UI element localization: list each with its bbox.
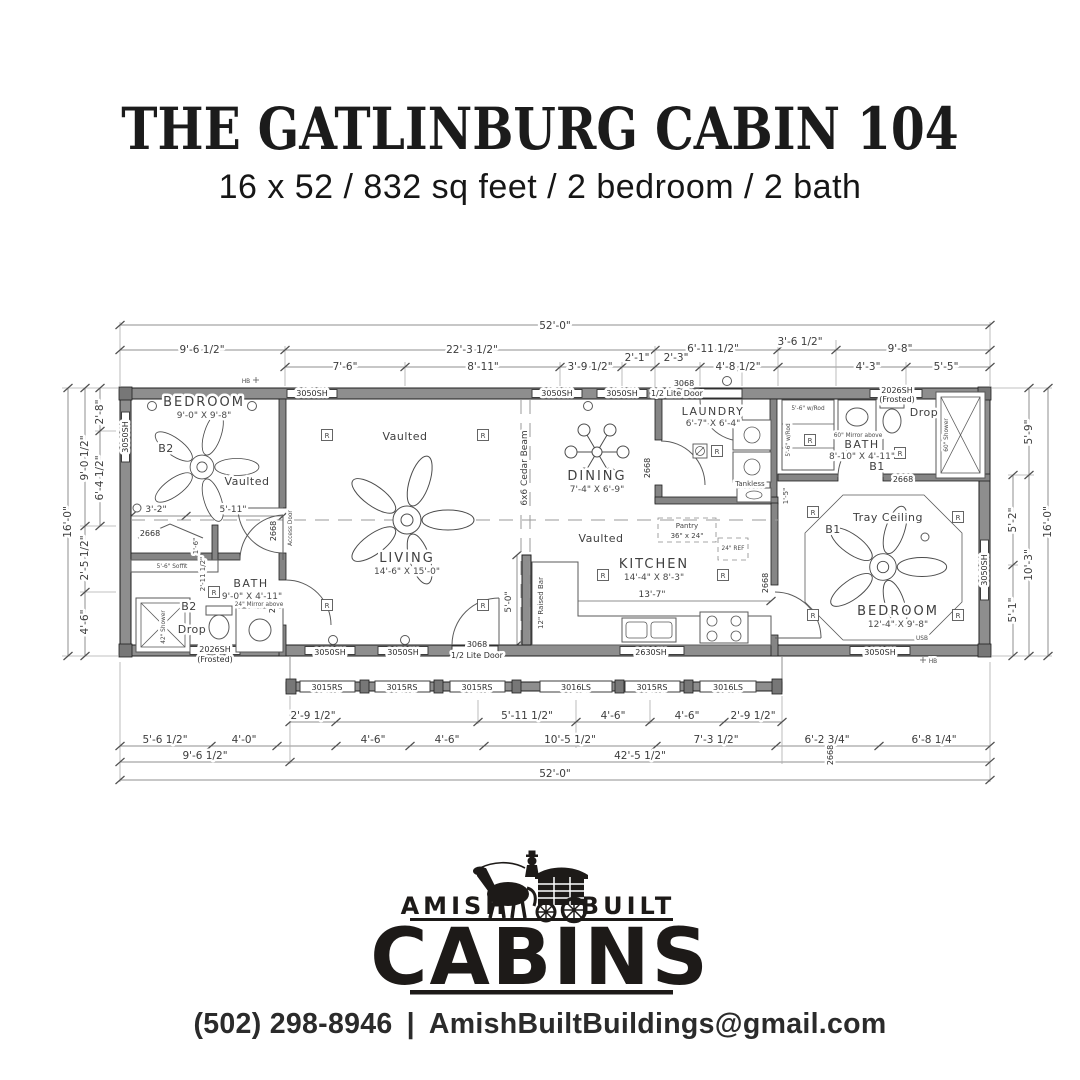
window-label: 2630SH [635, 648, 666, 657]
door-label: 1/2 Lite Door [451, 651, 504, 660]
dim-bottom: 10'-5 1/2" [544, 734, 596, 746]
recessed-icon: R [808, 437, 813, 445]
porch-window-label: 3015RS [312, 683, 343, 692]
room-bath2-tag: B2 [181, 600, 197, 613]
room-living-name: LIVING [379, 551, 435, 566]
contact-separator: | [407, 1008, 415, 1040]
room-bath1-mirror: 60" Mirror above [834, 433, 883, 439]
porch-window-label: 3015RS [637, 683, 668, 692]
dim-bottom: 4'-6" [435, 734, 460, 746]
recessed-icon: R [325, 602, 330, 610]
room-living-ceiling: Vaulted [382, 430, 427, 443]
amish-built-cabins-logo: AMISH BUILT CABINS [0, 850, 1080, 1010]
dim-top: 4'-3" [856, 361, 881, 373]
dim-right: 5'-2" [1007, 508, 1019, 533]
porch-window-label: 3015RS [462, 683, 493, 692]
dim-top: 7'-6" [333, 361, 358, 373]
window-label: 2026SH [881, 386, 912, 395]
dim-left: 4'-6" [79, 610, 91, 635]
logo-cabins: CABINS [370, 913, 710, 1003]
recessed-icon: R [481, 432, 486, 440]
dim-top: 5'-5" [934, 361, 959, 373]
dim-bottom: 42'-5 1/2" [614, 750, 666, 762]
page-subtitle: 16 x 52 / 832 sq feet / 2 bedroom / 2 ba… [0, 168, 1080, 207]
dim-left: 2'-5 1/2" [79, 535, 91, 580]
dim-bottom: 4'-6" [675, 710, 700, 722]
dim-inner: 5'-0" [504, 591, 514, 612]
dim-bottom: 4'-6" [601, 710, 626, 722]
room-bedroom1-name: BEDROOM [857, 604, 939, 619]
window-label: 3050SH [314, 648, 345, 657]
dim-right: 10'-3" [1023, 549, 1035, 581]
dim-right: 16'-0" [1042, 506, 1054, 538]
dim-inner: 1'-6" [192, 538, 200, 555]
porch-rail [286, 656, 782, 694]
phone-number: (502) 298-8946 [193, 1008, 392, 1040]
floor-plan: R R R R R R R R R R R R R R 52'-0" 9'-6 … [0, 300, 1080, 800]
dim-bottom: 6'-2 3/4" [804, 734, 849, 746]
door-label: 2668 [643, 458, 652, 478]
porch-window-label: 3015RS [387, 683, 418, 692]
dim-inner: 1'-5" [782, 488, 790, 505]
room-kitchen-size: 14'-4" X 8'-3" [624, 573, 684, 583]
door-label: 3068 [674, 379, 694, 388]
room-laundry-size: 6'-7" X 6'-4" [686, 419, 741, 429]
recessed-icon: R [715, 448, 720, 456]
window-label: 3050SH [296, 389, 327, 398]
window-label: 3050SH [541, 389, 572, 398]
dim-top: 4'-8 1/2" [715, 361, 760, 373]
recessed-icon: R [481, 602, 486, 610]
room-bath2-size: 9'-0" X 4'-11" [222, 592, 282, 602]
door-label: 2668 [269, 521, 278, 541]
door-label: 1/2 Lite Door [651, 389, 704, 398]
dim-bottom: 9'-6 1/2" [182, 750, 227, 762]
dim-top: 22'-3 1/2" [446, 344, 498, 356]
page-header: THE GATLINBURG CABIN 104 16 x 52 / 832 s… [0, 98, 1080, 207]
room-bath1-size: 8'-10" X 4'-11" [829, 452, 895, 462]
dim-bottom: 4'-0" [232, 734, 257, 746]
dim-bottom: 2'-9 1/2" [730, 710, 775, 722]
recessed-icon: R [956, 612, 961, 620]
contact-line: (502) 298-8946|AmishBuiltBuildings@gmail… [0, 1008, 1080, 1041]
window-label: 3050SH [121, 421, 130, 452]
room-laundry-name: LAUNDRY [682, 405, 745, 418]
door-label: 3068 [467, 640, 487, 649]
window-label: (Frosted) [879, 395, 915, 404]
room-bath2-soffit: 5'-6" Soffit [157, 564, 188, 570]
room-bath2-mirror: 24" Mirror above [235, 602, 284, 608]
room-bath2-drop: Drop [178, 623, 206, 636]
recessed-icon: R [325, 432, 330, 440]
dim-top: 2'-1" [625, 352, 650, 364]
dim-bottom: 5'-11 1/2" [501, 710, 553, 722]
recessed-icon: R [811, 612, 816, 620]
room-bath2-shower: 42" Shower [161, 610, 167, 644]
window-label: 3050SH [980, 554, 989, 585]
room-bedroom1-size: 12'-4" X 9'-8" [868, 620, 928, 630]
room-bedroom1-ceiling: Tray Ceiling [852, 511, 923, 524]
usb-label: USB [916, 636, 928, 642]
dim-inner: 3'-2" [145, 505, 166, 515]
dim-inner: 5'-11" [219, 505, 246, 515]
room-bath1-closet: 5'-6" w/Rod [791, 406, 825, 412]
pantry-label: Pantry [676, 522, 698, 530]
dim-left: 16'-0" [62, 506, 74, 538]
room-dining-name: DINING [567, 469, 626, 484]
room-kitchen-ceiling: Vaulted [578, 532, 623, 545]
dim-right: 5'-9" [1023, 420, 1035, 445]
tankless-label: Tankless [734, 480, 765, 488]
dim-inner: 2'-11 1/2" [199, 557, 207, 592]
room-bedroom2-tag: B2 [158, 442, 174, 455]
dim-right: 5'-1" [1007, 598, 1019, 623]
recessed-icon: R [721, 572, 726, 580]
dim-bottom: 4'-6" [361, 734, 386, 746]
door-label: 2668 [761, 573, 770, 593]
window-label: 3050SH [864, 648, 895, 657]
cedar-beam-label: 6x6 Cedar Beam [520, 430, 530, 505]
dim-bottom: 5'-6 1/2" [142, 734, 187, 746]
door-label: 2668 [826, 745, 835, 765]
dim-top: 8'-11" [467, 361, 499, 373]
window-label: 3050SH [606, 389, 637, 398]
page-title: THE GATLINBURG CABIN 104 [86, 98, 993, 162]
dim-overall-top: 52'-0" [539, 320, 571, 332]
recessed-icon: R [811, 509, 816, 517]
porch-window-label: 3016LS [561, 683, 591, 692]
room-bedroom2-name: BEDROOM [163, 395, 245, 410]
room-bath1-name: BATH [844, 438, 879, 451]
room-kitchen-name: KITCHEN [619, 557, 689, 572]
porch-window-label: 3016LS [713, 683, 743, 692]
door-label: Access Door [288, 510, 294, 546]
email-address: AmishBuiltBuildings@gmail.com [429, 1008, 887, 1040]
dim-top: 9'-8" [888, 343, 913, 355]
dim-top: 3'-6 1/2" [777, 336, 822, 348]
window-label: 2026SH [199, 645, 230, 654]
dim-left: 6'-4 1/2" [94, 455, 106, 500]
window-label: 3050SH [387, 648, 418, 657]
dim-bottom: 7'-3 1/2" [693, 734, 738, 746]
dim-top: 3'-9 1/2" [567, 361, 612, 373]
door-label: 2668 [140, 529, 160, 538]
dim-top: 6'-11 1/2" [687, 343, 739, 355]
room-bath1-tag: B1 [869, 460, 885, 473]
dim-overall-bottom: 52'-0" [539, 768, 571, 780]
room-living-size: 14'-6" X 15'-0" [374, 567, 440, 577]
recessed-icon: R [956, 514, 961, 522]
hose-bib-label: HB [242, 379, 250, 385]
room-bedroom2-ceiling: Vaulted [224, 475, 269, 488]
room-bath2-name: BATH [233, 577, 268, 590]
room-bath1-closet: 5'-6" w/Rod [786, 423, 792, 457]
recessed-icon: R [601, 572, 606, 580]
room-bath1-shower: 60" Shower [944, 418, 950, 452]
dim-bottom: 2'-9 1/2" [290, 710, 335, 722]
dim-bottom: 6'-8 1/4" [911, 734, 956, 746]
dim-inner: 13'-7" [638, 590, 665, 600]
dim-top: 9'-6 1/2" [179, 344, 224, 356]
room-bedroom1-tag: B1 [825, 523, 841, 536]
horse-and-wagon-icon [473, 851, 588, 922]
pantry-size-label: 36" x 24" [671, 532, 704, 540]
recessed-icon: R [898, 450, 903, 458]
fridge-label: 24" REF [722, 546, 745, 552]
logo-rule-bottom [410, 990, 673, 995]
dim-left: 2'-8" [94, 400, 106, 425]
window-label: (Frosted) [197, 655, 233, 664]
room-dining-size: 7'-4" X 6'-9" [570, 485, 625, 495]
door-label: 2668 [893, 475, 913, 484]
recessed-icon: R [212, 589, 217, 597]
dim-top: 2'-3" [664, 352, 689, 364]
room-bedroom2-size: 9'-0" X 9'-8" [177, 411, 232, 421]
hose-bib-label: HB [929, 659, 937, 665]
dim-left: 9'-0 1/2" [79, 435, 91, 480]
raised-bar-label: 12" Raised Bar [537, 577, 545, 629]
room-bath1-drop: Drop [910, 406, 938, 419]
